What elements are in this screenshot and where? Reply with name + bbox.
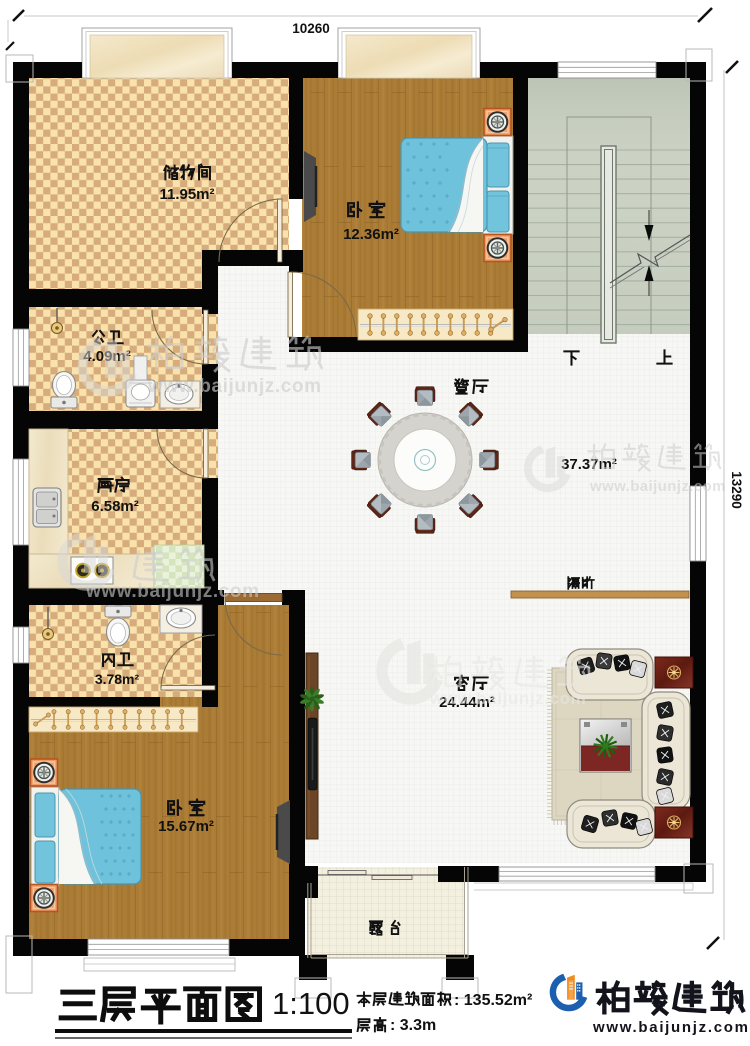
- svg-text:12.36m²: 12.36m²: [343, 226, 399, 243]
- svg-text:www.baijunjz.com: www.baijunjz.com: [429, 689, 586, 708]
- svg-text:15.67m²: 15.67m²: [158, 818, 214, 835]
- svg-text:6.58m²: 6.58m²: [91, 498, 139, 515]
- svg-text:www.baijunjz.com: www.baijunjz.com: [589, 478, 726, 495]
- svg-text:1:100: 1:100: [272, 986, 350, 1021]
- svg-text:www.baijunjz.com: www.baijunjz.com: [147, 376, 322, 397]
- svg-text:www.baijunjz.com: www.baijunjz.com: [592, 1019, 750, 1036]
- svg-text:13290: 13290: [729, 471, 744, 509]
- svg-text:10260: 10260: [292, 21, 330, 36]
- svg-text:www.baijunjz.com: www.baijunjz.com: [85, 581, 260, 602]
- svg-text:3.78m²: 3.78m²: [95, 671, 140, 687]
- svg-text:: 135.52m²: : 135.52m²: [454, 992, 532, 1009]
- svg-text:: 3.3m: : 3.3m: [390, 1017, 436, 1034]
- svg-text:11.95m²: 11.95m²: [159, 186, 214, 203]
